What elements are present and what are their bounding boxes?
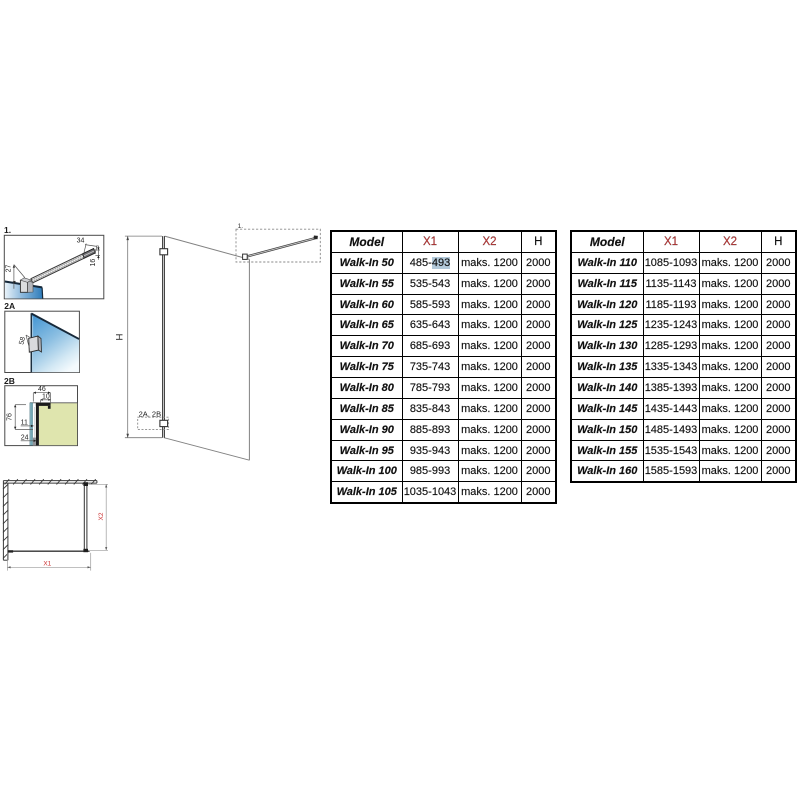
svg-text:1.: 1.	[4, 225, 11, 235]
svg-text:46: 46	[38, 386, 46, 393]
svg-text:24: 24	[21, 434, 29, 441]
svg-text:27: 27	[5, 265, 12, 273]
svg-text:H: H	[115, 333, 126, 340]
svg-text:2A: 2A	[4, 301, 15, 311]
svg-text:X1: X1	[43, 561, 51, 568]
svg-text:X2: X2	[98, 512, 105, 520]
svg-text:10: 10	[42, 393, 50, 400]
svg-text:2B: 2B	[4, 376, 15, 386]
svg-text:1.: 1.	[238, 223, 244, 230]
svg-text:2A, 2B: 2A, 2B	[139, 409, 162, 418]
svg-text:34: 34	[77, 238, 85, 245]
svg-text:16: 16	[90, 259, 97, 267]
svg-text:11: 11	[21, 419, 28, 426]
svg-text:76: 76	[7, 413, 14, 421]
